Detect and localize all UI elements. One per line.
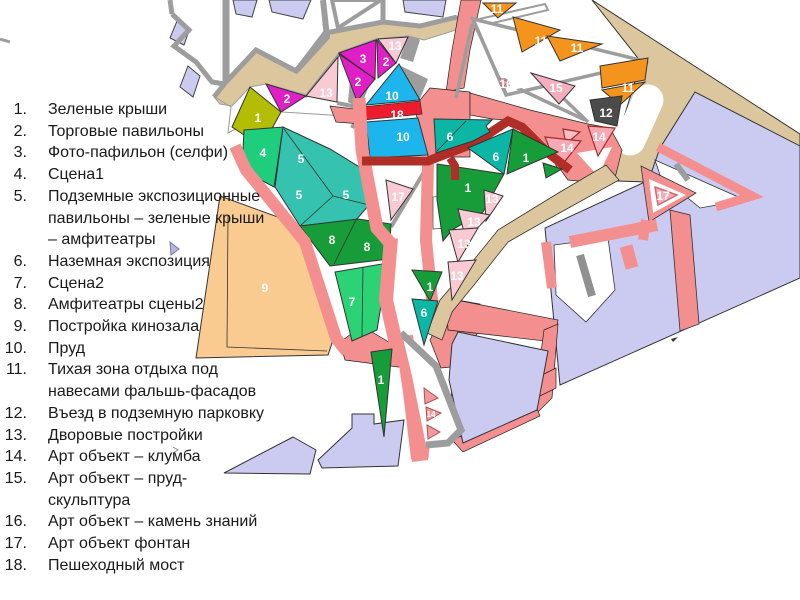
svg-text:5: 5 [343,188,350,202]
svg-text:8: 8 [364,240,371,254]
svg-text:12: 12 [599,106,613,120]
svg-text:11: 11 [535,34,548,48]
svg-text:14: 14 [592,130,606,144]
svg-text:1: 1 [427,280,434,294]
svg-text:17: 17 [391,190,405,204]
svg-text:13: 13 [485,192,499,206]
svg-text:2: 2 [355,75,362,89]
svg-text:6: 6 [447,130,454,144]
svg-text:3: 3 [360,52,367,66]
svg-text:6: 6 [493,150,500,164]
svg-text:11: 11 [622,81,635,95]
svg-text:17: 17 [656,189,670,203]
svg-text:13: 13 [450,269,464,283]
svg-text:1: 1 [465,181,472,195]
svg-text:13: 13 [457,237,471,251]
svg-text:18: 18 [390,108,404,122]
svg-text:11: 11 [491,2,504,16]
svg-text:14: 14 [427,410,436,419]
svg-text:13: 13 [388,39,402,53]
svg-text:1: 1 [523,151,530,165]
svg-text:13: 13 [319,86,333,100]
svg-text:10: 10 [385,89,399,103]
svg-text:15: 15 [549,81,563,95]
svg-text:14: 14 [560,141,574,155]
svg-text:10: 10 [396,130,410,144]
svg-text:13: 13 [467,215,481,229]
svg-text:7: 7 [349,295,356,309]
svg-text:1: 1 [378,373,385,387]
svg-text:16: 16 [499,77,513,91]
svg-text:11: 11 [571,41,584,55]
svg-text:2: 2 [383,55,390,69]
svg-text:6: 6 [421,306,428,320]
